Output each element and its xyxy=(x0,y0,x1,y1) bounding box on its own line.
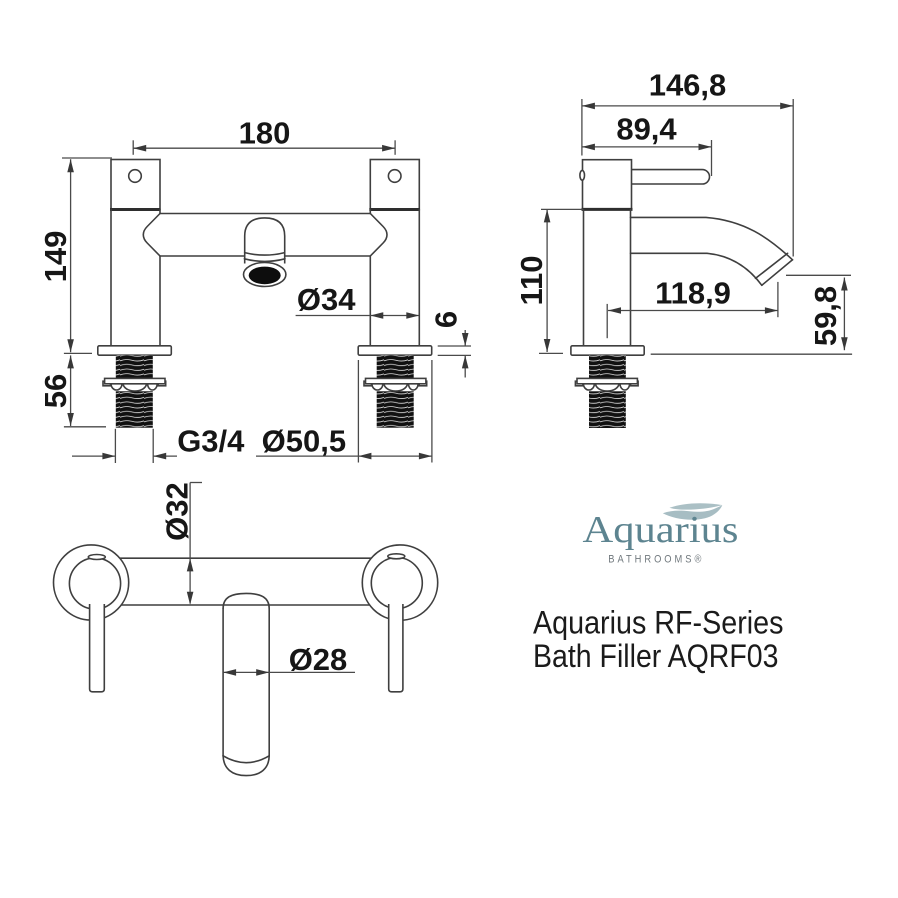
svg-text:Ø32: Ø32 xyxy=(160,482,195,541)
svg-text:89,4: 89,4 xyxy=(616,112,677,147)
svg-text:BATHROOMS®: BATHROOMS® xyxy=(608,554,704,566)
svg-text:6: 6 xyxy=(429,311,464,328)
svg-text:149: 149 xyxy=(38,231,73,283)
svg-text:Aquarius RF-Series: Aquarius RF-Series xyxy=(533,604,784,640)
svg-text:Ø50,5: Ø50,5 xyxy=(262,424,346,459)
svg-text:Aquarius: Aquarius xyxy=(583,509,739,551)
svg-text:G3/4: G3/4 xyxy=(177,424,245,459)
svg-text:146,8: 146,8 xyxy=(649,68,727,103)
svg-text:59,8: 59,8 xyxy=(808,286,843,346)
svg-text:Ø34: Ø34 xyxy=(297,282,356,317)
svg-text:118,9: 118,9 xyxy=(655,275,731,310)
svg-text:180: 180 xyxy=(239,116,291,151)
svg-text:56: 56 xyxy=(38,374,73,408)
svg-text:Bath Filler AQRF03: Bath Filler AQRF03 xyxy=(533,638,779,674)
svg-text:110: 110 xyxy=(514,255,549,305)
